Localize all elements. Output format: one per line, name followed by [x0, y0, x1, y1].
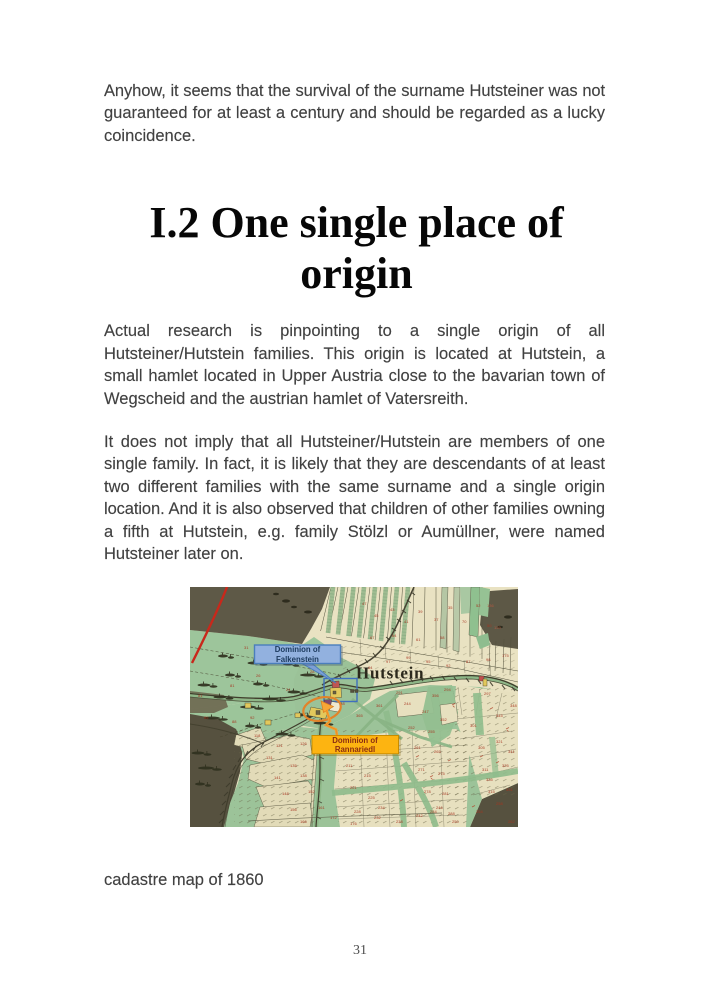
svg-text:254: 254: [476, 809, 483, 814]
svg-text:356: 356: [432, 693, 439, 698]
svg-text:92: 92: [446, 663, 451, 668]
svg-text:64: 64: [392, 633, 397, 638]
svg-text:321: 321: [496, 739, 503, 744]
svg-text:118: 118: [254, 733, 261, 738]
svg-text:98: 98: [486, 657, 491, 662]
svg-text:271: 271: [418, 767, 425, 772]
svg-text:31: 31: [244, 645, 249, 650]
svg-text:87: 87: [466, 659, 471, 664]
svg-text:138: 138: [300, 773, 307, 778]
svg-text:81: 81: [230, 683, 235, 688]
svg-text:95: 95: [426, 659, 431, 664]
svg-text:135: 135: [290, 763, 297, 768]
svg-text:247: 247: [422, 709, 429, 714]
svg-text:131: 131: [266, 755, 273, 760]
svg-text:Falkenstein: Falkenstein: [276, 655, 319, 664]
svg-text:252: 252: [408, 725, 415, 730]
svg-text:234: 234: [378, 805, 385, 810]
svg-text:288: 288: [448, 811, 455, 816]
svg-text:242: 242: [416, 813, 423, 818]
svg-text:325: 325: [502, 763, 509, 768]
svg-text:275: 275: [438, 771, 445, 776]
svg-text:261: 261: [414, 745, 421, 750]
svg-text:70: 70: [462, 619, 467, 624]
svg-text:85: 85: [204, 715, 209, 720]
svg-text:24: 24: [286, 687, 291, 692]
svg-text:331: 331: [506, 787, 513, 792]
svg-text:37: 37: [434, 617, 439, 622]
svg-text:291: 291: [396, 690, 403, 695]
svg-text:156: 156: [290, 807, 297, 812]
svg-text:262: 262: [508, 819, 515, 824]
svg-text:148: 148: [282, 791, 289, 796]
svg-text:45: 45: [374, 613, 379, 618]
svg-text:67: 67: [370, 635, 375, 640]
svg-text:341: 341: [508, 749, 515, 754]
svg-text:301: 301: [470, 723, 477, 728]
svg-text:126: 126: [300, 741, 307, 746]
svg-text:255: 255: [428, 729, 435, 734]
svg-text:92: 92: [250, 715, 255, 720]
svg-text:58: 58: [440, 635, 445, 640]
svg-text:161: 161: [318, 805, 325, 810]
svg-text:250: 250: [452, 819, 459, 824]
svg-text:265: 265: [434, 749, 441, 754]
svg-text:139: 139: [494, 625, 501, 630]
svg-text:244: 244: [404, 701, 411, 706]
svg-text:311: 311: [482, 767, 489, 772]
svg-text:Rannariedl: Rannariedl: [335, 745, 375, 754]
svg-text:238: 238: [396, 819, 403, 824]
svg-text:172: 172: [330, 815, 337, 820]
svg-text:26: 26: [256, 673, 261, 678]
svg-text:Hutstein: Hutstein: [356, 664, 424, 683]
svg-text:Dominion of: Dominion of: [332, 736, 378, 745]
svg-text:297: 297: [484, 691, 491, 696]
svg-text:365: 365: [356, 713, 363, 718]
svg-text:345: 345: [496, 713, 503, 718]
svg-text:305: 305: [478, 745, 485, 750]
svg-text:88: 88: [232, 719, 237, 724]
svg-text:361: 361: [376, 703, 383, 708]
svg-text:39: 39: [418, 609, 423, 614]
svg-text:278: 278: [424, 789, 431, 794]
svg-text:99: 99: [406, 655, 411, 660]
svg-text:348: 348: [510, 703, 517, 708]
svg-text:166: 166: [300, 819, 307, 824]
svg-text:35: 35: [448, 605, 453, 610]
svg-text:41: 41: [404, 619, 409, 624]
svg-text:315: 315: [488, 789, 495, 794]
svg-text:50: 50: [487, 623, 492, 628]
svg-text:221: 221: [350, 785, 357, 790]
svg-text:43: 43: [390, 607, 395, 612]
svg-text:175: 175: [502, 653, 509, 658]
svg-text:352: 352: [440, 717, 447, 722]
svg-text:136: 136: [487, 603, 494, 608]
svg-text:Dominion of: Dominion of: [275, 645, 321, 654]
svg-text:246: 246: [436, 805, 443, 810]
svg-text:228: 228: [354, 809, 361, 814]
svg-text:215: 215: [364, 773, 371, 778]
svg-text:176: 176: [350, 821, 357, 826]
svg-text:232: 232: [374, 815, 381, 820]
svg-text:47: 47: [362, 601, 367, 606]
svg-text:61: 61: [416, 637, 421, 642]
svg-text:52: 52: [476, 603, 481, 608]
svg-text:294: 294: [444, 687, 451, 692]
svg-text:121: 121: [276, 743, 283, 748]
svg-text:211: 211: [346, 763, 353, 768]
svg-text:225: 225: [368, 795, 375, 800]
svg-text:141: 141: [274, 775, 281, 780]
svg-text:258: 258: [496, 801, 503, 806]
svg-text:152: 152: [308, 789, 315, 794]
svg-text:281: 281: [442, 791, 449, 796]
svg-text:335: 335: [486, 777, 493, 782]
svg-text:81: 81: [198, 693, 203, 698]
